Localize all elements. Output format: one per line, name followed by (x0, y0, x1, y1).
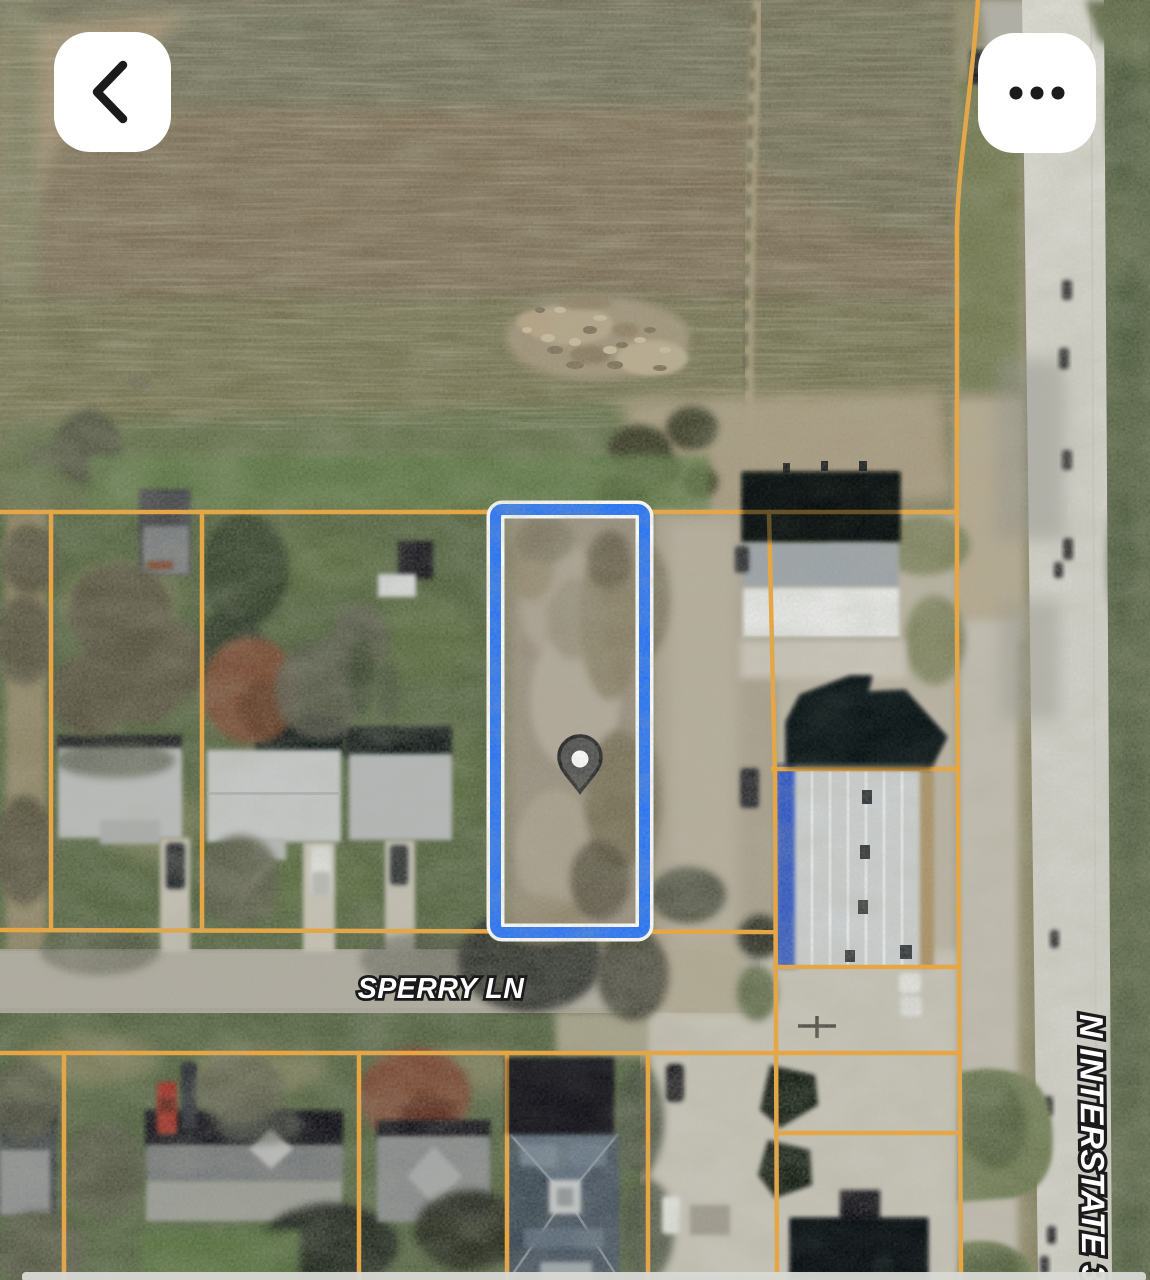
svg-text:N INTERSTATE 3: N INTERSTATE 3 (1073, 1014, 1112, 1280)
svg-text:SPERRY LN: SPERRY LN (358, 973, 525, 1005)
